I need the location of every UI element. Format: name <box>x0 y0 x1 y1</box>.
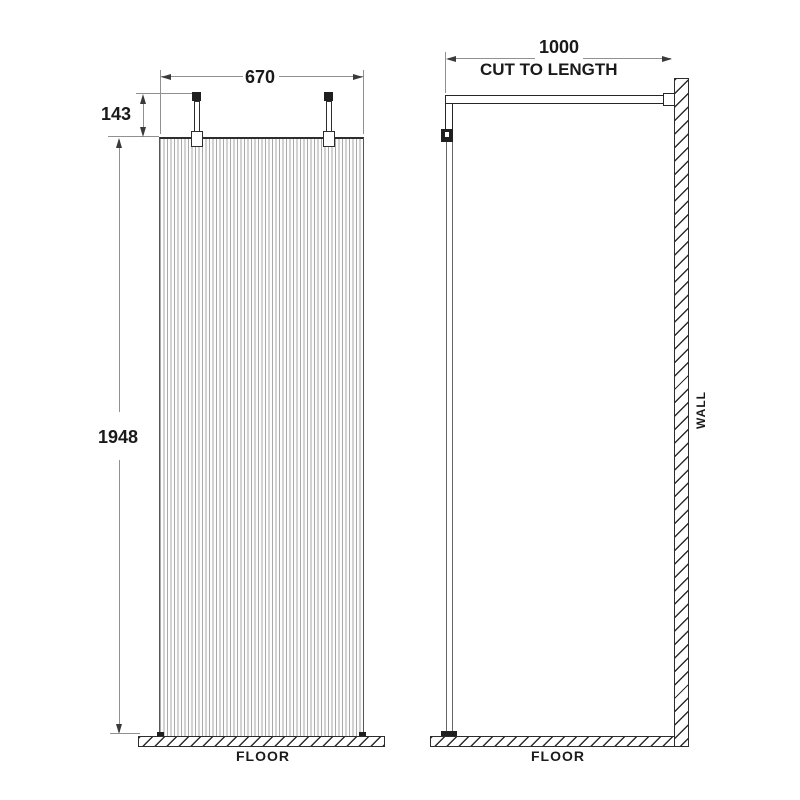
support-arm-downpost <box>445 103 453 131</box>
panel-height-dim-line-upper <box>119 140 120 412</box>
glass-clamp-dot <box>445 132 449 137</box>
arm-length-dim-label: 1000 <box>537 38 581 56</box>
floor-label-side: FLOOR <box>531 749 585 763</box>
width-dim-arrow-left <box>161 74 171 80</box>
bracket-height-arrow-up <box>140 94 146 104</box>
panel-bottom-extension-line <box>110 733 140 734</box>
wall-hatch <box>674 78 689 747</box>
width-dim-arrow-right <box>353 74 363 80</box>
bracket-height-dim-label: 143 <box>99 105 133 123</box>
bracket-cap <box>324 92 333 101</box>
floor-hatch-side <box>430 736 675 747</box>
bracket-clamp <box>191 131 203 147</box>
arm-dim-line-left <box>448 58 535 59</box>
floor-label-front: FLOOR <box>236 749 290 763</box>
panel-height-dim-label: 1948 <box>96 428 140 446</box>
width-dim-line-right <box>279 76 363 77</box>
arm-cut-note: CUT TO LENGTH <box>480 61 618 78</box>
bracket-post <box>326 101 332 132</box>
panel-height-arrow-up <box>116 138 122 148</box>
glass-panel-edge <box>446 142 453 731</box>
bracket-cap <box>192 92 201 101</box>
width-extension-line-right <box>363 70 364 134</box>
panel-top-extension-line <box>108 136 159 137</box>
bracket-height-arrow-down <box>140 127 146 137</box>
fluted-glass-panel <box>159 137 364 736</box>
floor-hatch-front <box>138 736 385 747</box>
shower-screen-technical-drawing: 670 143 1948 FL <box>0 0 800 800</box>
arm-dim-arrow-left <box>446 56 456 62</box>
wall-label: WALL <box>695 391 707 429</box>
bracket-post <box>194 101 200 132</box>
panel-height-dim-line-lower <box>119 460 120 732</box>
width-dim-line-left <box>161 76 243 77</box>
arm-extension-line <box>445 52 446 93</box>
arm-dim-line-right <box>583 58 671 59</box>
arm-dim-arrow-right <box>662 56 672 62</box>
width-dim-label: 670 <box>243 68 277 86</box>
support-arm-tube <box>445 95 666 104</box>
bracket-clamp <box>323 131 335 147</box>
